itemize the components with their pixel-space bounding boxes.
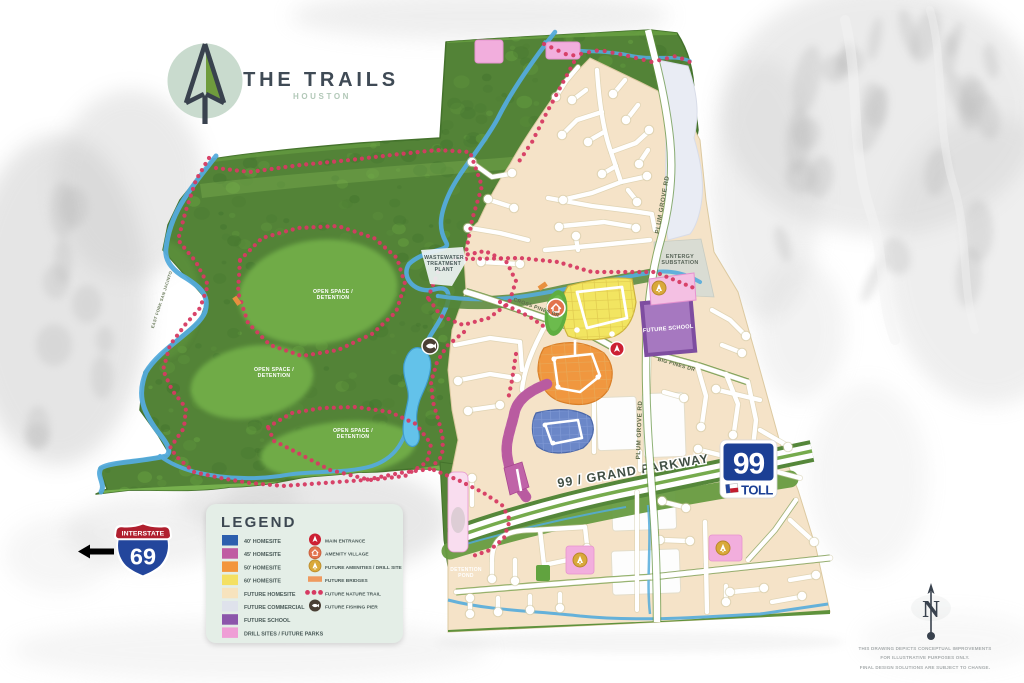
svg-text:MAIN ENTRANCE: MAIN ENTRANCE [325, 539, 366, 545]
svg-text:TOLL: TOLL [741, 483, 773, 498]
svg-text:69: 69 [130, 544, 156, 570]
svg-text:INTERSTATE: INTERSTATE [122, 531, 165, 538]
svg-text:AMENITY VILLAGE: AMENITY VILLAGE [325, 552, 369, 558]
svg-text:HOUSTON: HOUSTON [293, 92, 351, 101]
svg-text:40' HOMESITE: 40' HOMESITE [244, 539, 281, 545]
svg-text:FUTURE SCHOOL: FUTURE SCHOOL [244, 618, 291, 624]
svg-text:FUTURE AMENITIES / DRILL SITE: FUTURE AMENITIES / DRILL SITE [325, 565, 403, 571]
svg-text:FUTURE FISHING PIER: FUTURE FISHING PIER [325, 605, 378, 611]
svg-text:THE TRAILS: THE TRAILS [243, 69, 399, 91]
svg-text:60' HOMESITE: 60' HOMESITE [244, 579, 281, 585]
svg-text:LEGEND: LEGEND [221, 514, 297, 531]
svg-text:FUTURE HOMESITE: FUTURE HOMESITE [244, 592, 296, 598]
svg-text:45' HOMESITE: 45' HOMESITE [244, 552, 281, 558]
svg-text:N: N [922, 597, 940, 623]
svg-text:OPEN SPACE /DETENTION: OPEN SPACE /DETENTION [313, 289, 353, 301]
svg-text:99: 99 [733, 448, 765, 481]
svg-text:OPEN SPACE /DETENTION: OPEN SPACE /DETENTION [333, 428, 373, 440]
svg-text:FUTURE NATURE TRAIL: FUTURE NATURE TRAIL [325, 591, 381, 597]
svg-text:FUTURE BRIDGES: FUTURE BRIDGES [325, 578, 368, 584]
svg-text:FUTURE COMMERCIAL: FUTURE COMMERCIAL [244, 605, 305, 611]
svg-text:50' HOMESITE: 50' HOMESITE [244, 565, 281, 571]
svg-text:DRILL SITES / FUTURE PARKS: DRILL SITES / FUTURE PARKS [244, 631, 324, 637]
svg-text:ENTERGYSUBSTATION: ENTERGYSUBSTATION [661, 254, 698, 266]
svg-text:OPEN SPACE /DETENTION: OPEN SPACE /DETENTION [254, 367, 294, 379]
